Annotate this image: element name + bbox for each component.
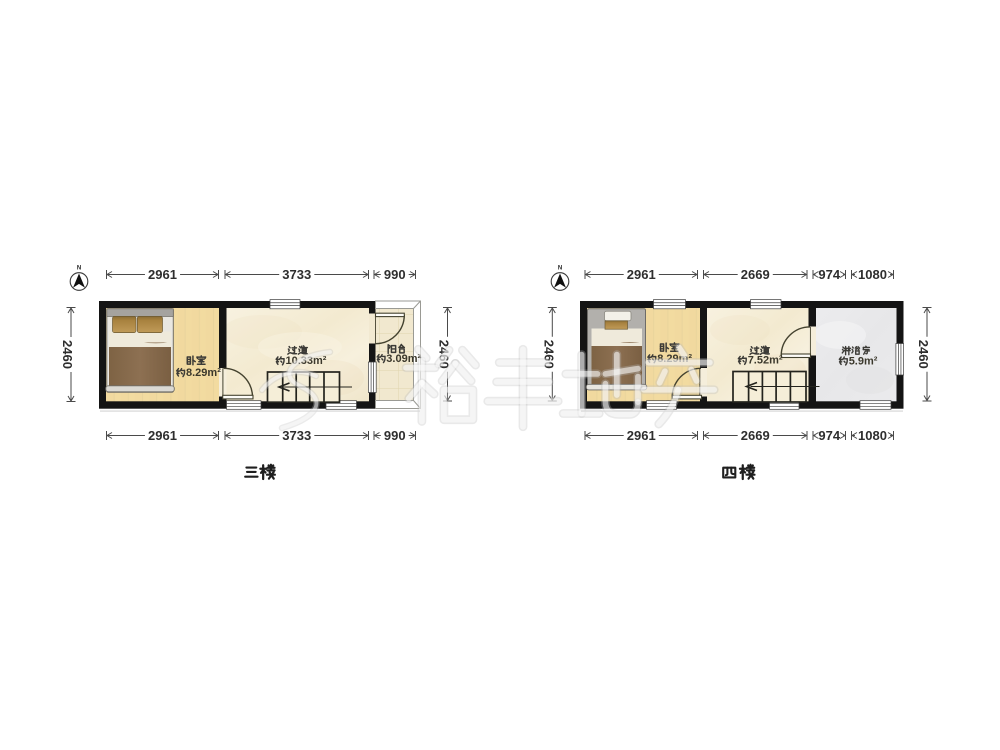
svg-text:2961: 2961 [148, 428, 177, 443]
svg-text:2961: 2961 [148, 267, 177, 282]
svg-text:990: 990 [384, 428, 406, 443]
svg-text:2669: 2669 [741, 428, 770, 443]
svg-text:3.09m²: 3.09m² [386, 353, 421, 365]
svg-text:974: 974 [818, 267, 840, 282]
svg-text:2460: 2460 [916, 340, 931, 369]
svg-text:5.9m²: 5.9m² [849, 355, 878, 367]
svg-text:1080: 1080 [858, 267, 887, 282]
svg-text:7.52m²: 7.52m² [748, 355, 783, 367]
svg-text:3733: 3733 [282, 428, 311, 443]
svg-text:8.29m²: 8.29m² [186, 367, 221, 379]
svg-text:2961: 2961 [627, 267, 656, 282]
svg-text:2961: 2961 [627, 428, 656, 443]
svg-text:N: N [77, 265, 81, 271]
svg-text:974: 974 [818, 428, 840, 443]
svg-text:3733: 3733 [282, 267, 311, 282]
svg-text:1080: 1080 [858, 428, 887, 443]
svg-text:N: N [558, 265, 562, 271]
svg-text:2669: 2669 [741, 267, 770, 282]
svg-text:990: 990 [384, 267, 406, 282]
svg-text:2460: 2460 [60, 340, 75, 369]
